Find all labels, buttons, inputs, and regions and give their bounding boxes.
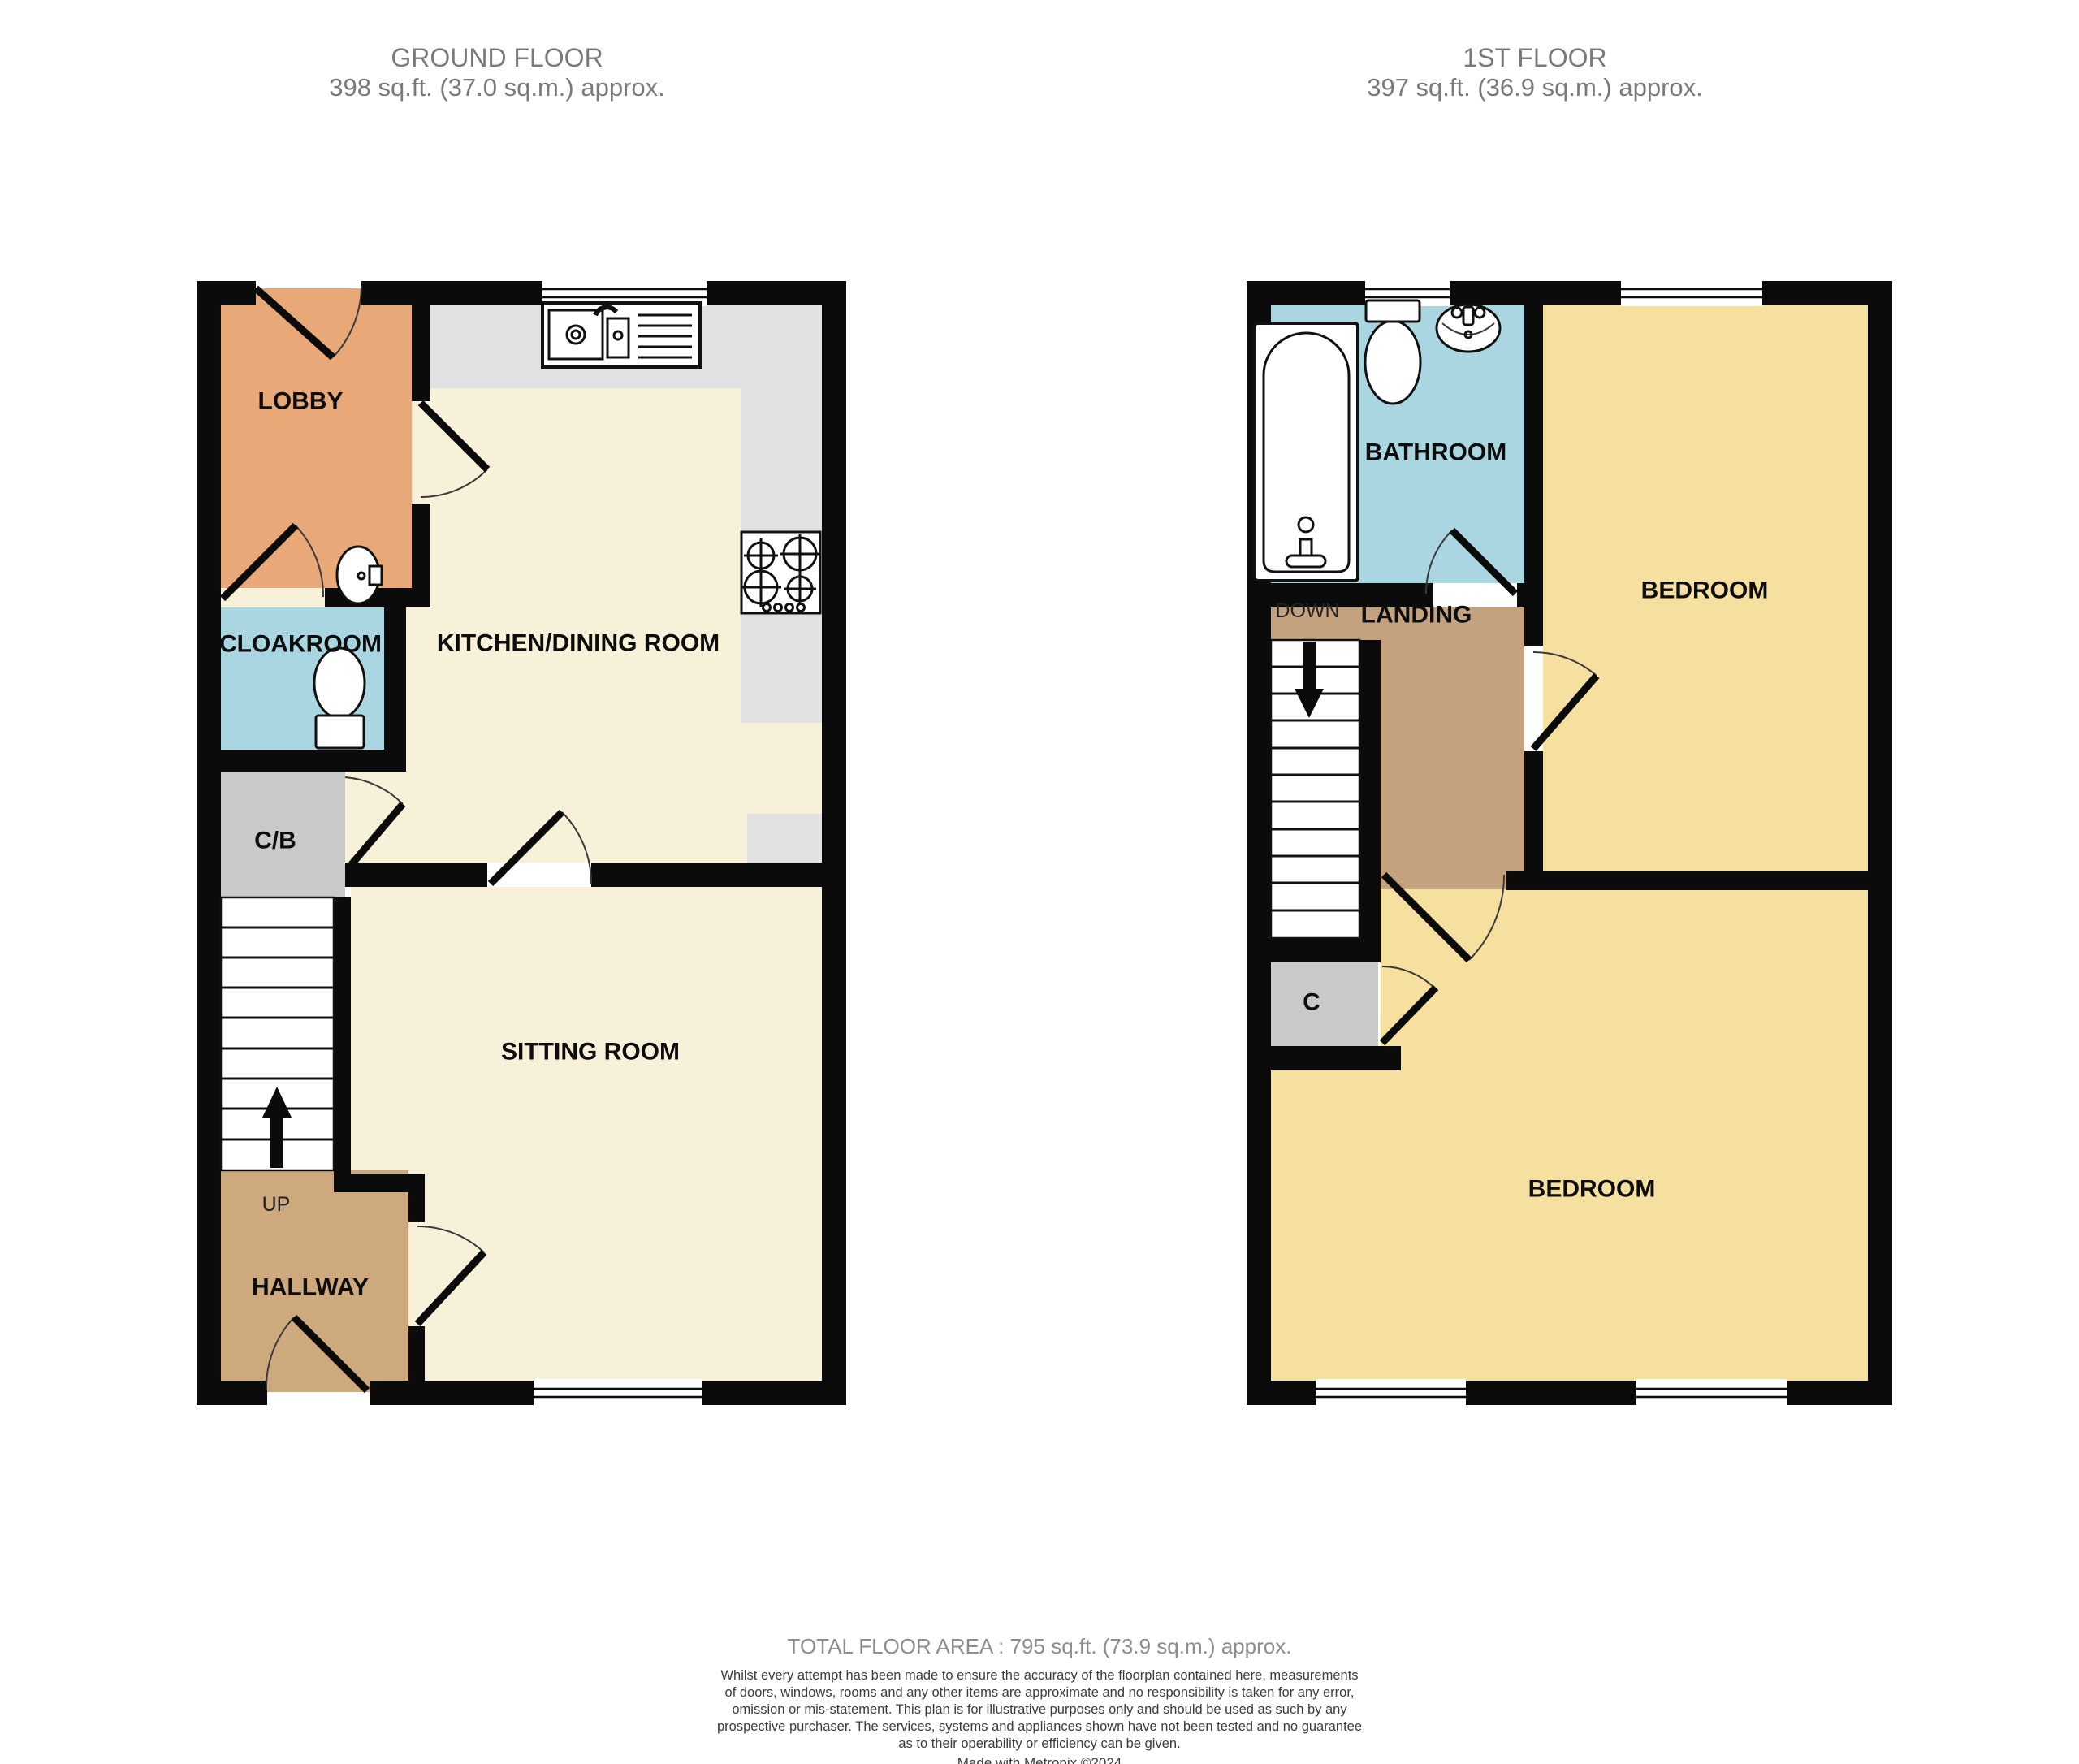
- toilet-icon: [1365, 300, 1420, 404]
- bathroom-basin-icon: [1437, 305, 1500, 352]
- metropix-credit: Made with Metropix ©2024: [0, 1755, 2079, 1764]
- room-label-kitchen-dining: KITCHEN/DINING ROOM: [437, 630, 720, 657]
- up-arrow-shaft: [270, 1118, 283, 1168]
- toilet-bowl: [1365, 321, 1420, 404]
- ff-outer-wall-top: [1247, 281, 1892, 305]
- stair-hall-connector-wall: [334, 1174, 425, 1192]
- front-gap: [267, 1392, 370, 1407]
- window-pane: [1621, 280, 1762, 306]
- basin-tap: [370, 566, 382, 585]
- sitting-room-window: [534, 1379, 702, 1407]
- gf-staircase: [221, 897, 334, 1170]
- stair-side-wall: [334, 897, 351, 1179]
- bedroom-back-room-left: [1271, 1070, 1381, 1381]
- room-label-lobby: LOBBY: [258, 388, 344, 415]
- window-pane: [1316, 1379, 1466, 1407]
- ground-floor-plan: LOBBY CLOAKROOM KITCHEN/DINING ROOM C/B …: [197, 279, 846, 1407]
- sink-basin-large: [549, 310, 603, 359]
- room-label-sitting-room: SITTING ROOM: [501, 1039, 680, 1066]
- landing-bottom-wall: [1506, 871, 1868, 890]
- gf-outer-wall-left: [197, 281, 221, 1405]
- footer: TOTAL FLOOR AREA : 795 sq.ft. (73.9 sq.m…: [0, 1634, 2079, 1764]
- hallway-right-wall-upper: [408, 1192, 425, 1222]
- ff-staircase: [1271, 640, 1359, 938]
- sitting-room-top-wall-right: [591, 863, 822, 887]
- cloakroom-right-wall: [384, 607, 406, 750]
- room-label-cb: C/B: [254, 828, 296, 854]
- basin-tap-right: [1475, 308, 1485, 318]
- floorplan-drawing: LOBBY CLOAKROOM KITCHEN/DINING ROOM C/B …: [0, 0, 2079, 1764]
- gf-outer-wall-right: [822, 281, 846, 1405]
- stairs-down-label: DOWN: [1275, 599, 1339, 622]
- bedroom-back-room: [1381, 889, 1868, 1381]
- room-label-bedroom-front: BEDROOM: [1641, 577, 1769, 604]
- window-pane: [1636, 1379, 1787, 1407]
- ff-outer-wall-right: [1868, 281, 1892, 1405]
- disclaimer-text: Whilst every attempt has been made to en…: [682, 1667, 1397, 1753]
- room-label-bedroom-back: BEDROOM: [1528, 1176, 1656, 1203]
- basin-spout: [1463, 307, 1473, 325]
- room-label-cloakroom: CLOAKROOM: [219, 631, 382, 658]
- first-floor-plan: BATHROOM BEDROOM DOWN LANDING C BEDROOM: [1247, 280, 1892, 1407]
- c-cupboard-bottom-wall: [1247, 1046, 1401, 1070]
- sitting-room: [351, 887, 822, 1381]
- sink-basin-small: [607, 318, 629, 357]
- bedroom-front-window: [1621, 280, 1762, 306]
- stairs-up-label: UP: [262, 1193, 291, 1216]
- cloakroom-bottom-wall: [197, 750, 406, 772]
- bathtub-drain: [1299, 517, 1313, 532]
- cloakroom-toilet-icon: [314, 648, 365, 748]
- room-label-landing: LANDING: [1361, 602, 1472, 629]
- down-arrow-shaft: [1303, 642, 1316, 689]
- bedroom-back-window-right: [1636, 1379, 1787, 1407]
- window-pane: [534, 1379, 702, 1407]
- toilet-cistern: [1366, 300, 1420, 322]
- bathtub-tap-bar: [1286, 556, 1325, 567]
- bedroom-back-window-left: [1316, 1379, 1466, 1407]
- lobby-room: [221, 305, 412, 588]
- lobby-right-wall-upper: [412, 305, 430, 401]
- stairwell-bottom-wall: [1247, 938, 1381, 962]
- hob-icon: [741, 532, 820, 613]
- sitting-room-top-wall-left: [345, 863, 487, 887]
- kitchen-counter-corner: [747, 814, 822, 863]
- front-door-opening: [267, 1381, 370, 1407]
- stairwell-side-wall: [1359, 640, 1381, 940]
- bathroom-bottom-wall-right: [1517, 583, 1543, 607]
- hallway-right-wall-lower: [408, 1326, 425, 1381]
- bathtub-icon: [1255, 323, 1358, 581]
- room-label-hallway: HALLWAY: [252, 1274, 369, 1301]
- toilet-cistern: [316, 716, 364, 748]
- landing-bedroom-wall: [1524, 751, 1543, 871]
- kitchen-sink-unit: [542, 303, 700, 367]
- floorplan-page: GROUND FLOOR 398 sq.ft. (37.0 sq.m.) app…: [0, 0, 2079, 1764]
- basin-tap-left: [1452, 308, 1462, 318]
- c-cupboard: [1271, 962, 1378, 1046]
- room-label-bathroom: BATHROOM: [1365, 439, 1506, 466]
- room-label-c: C: [1303, 989, 1320, 1016]
- toilet-bowl: [314, 648, 365, 718]
- total-floor-area: TOTAL FLOOR AREA : 795 sq.ft. (73.9 sq.m…: [0, 1634, 2079, 1659]
